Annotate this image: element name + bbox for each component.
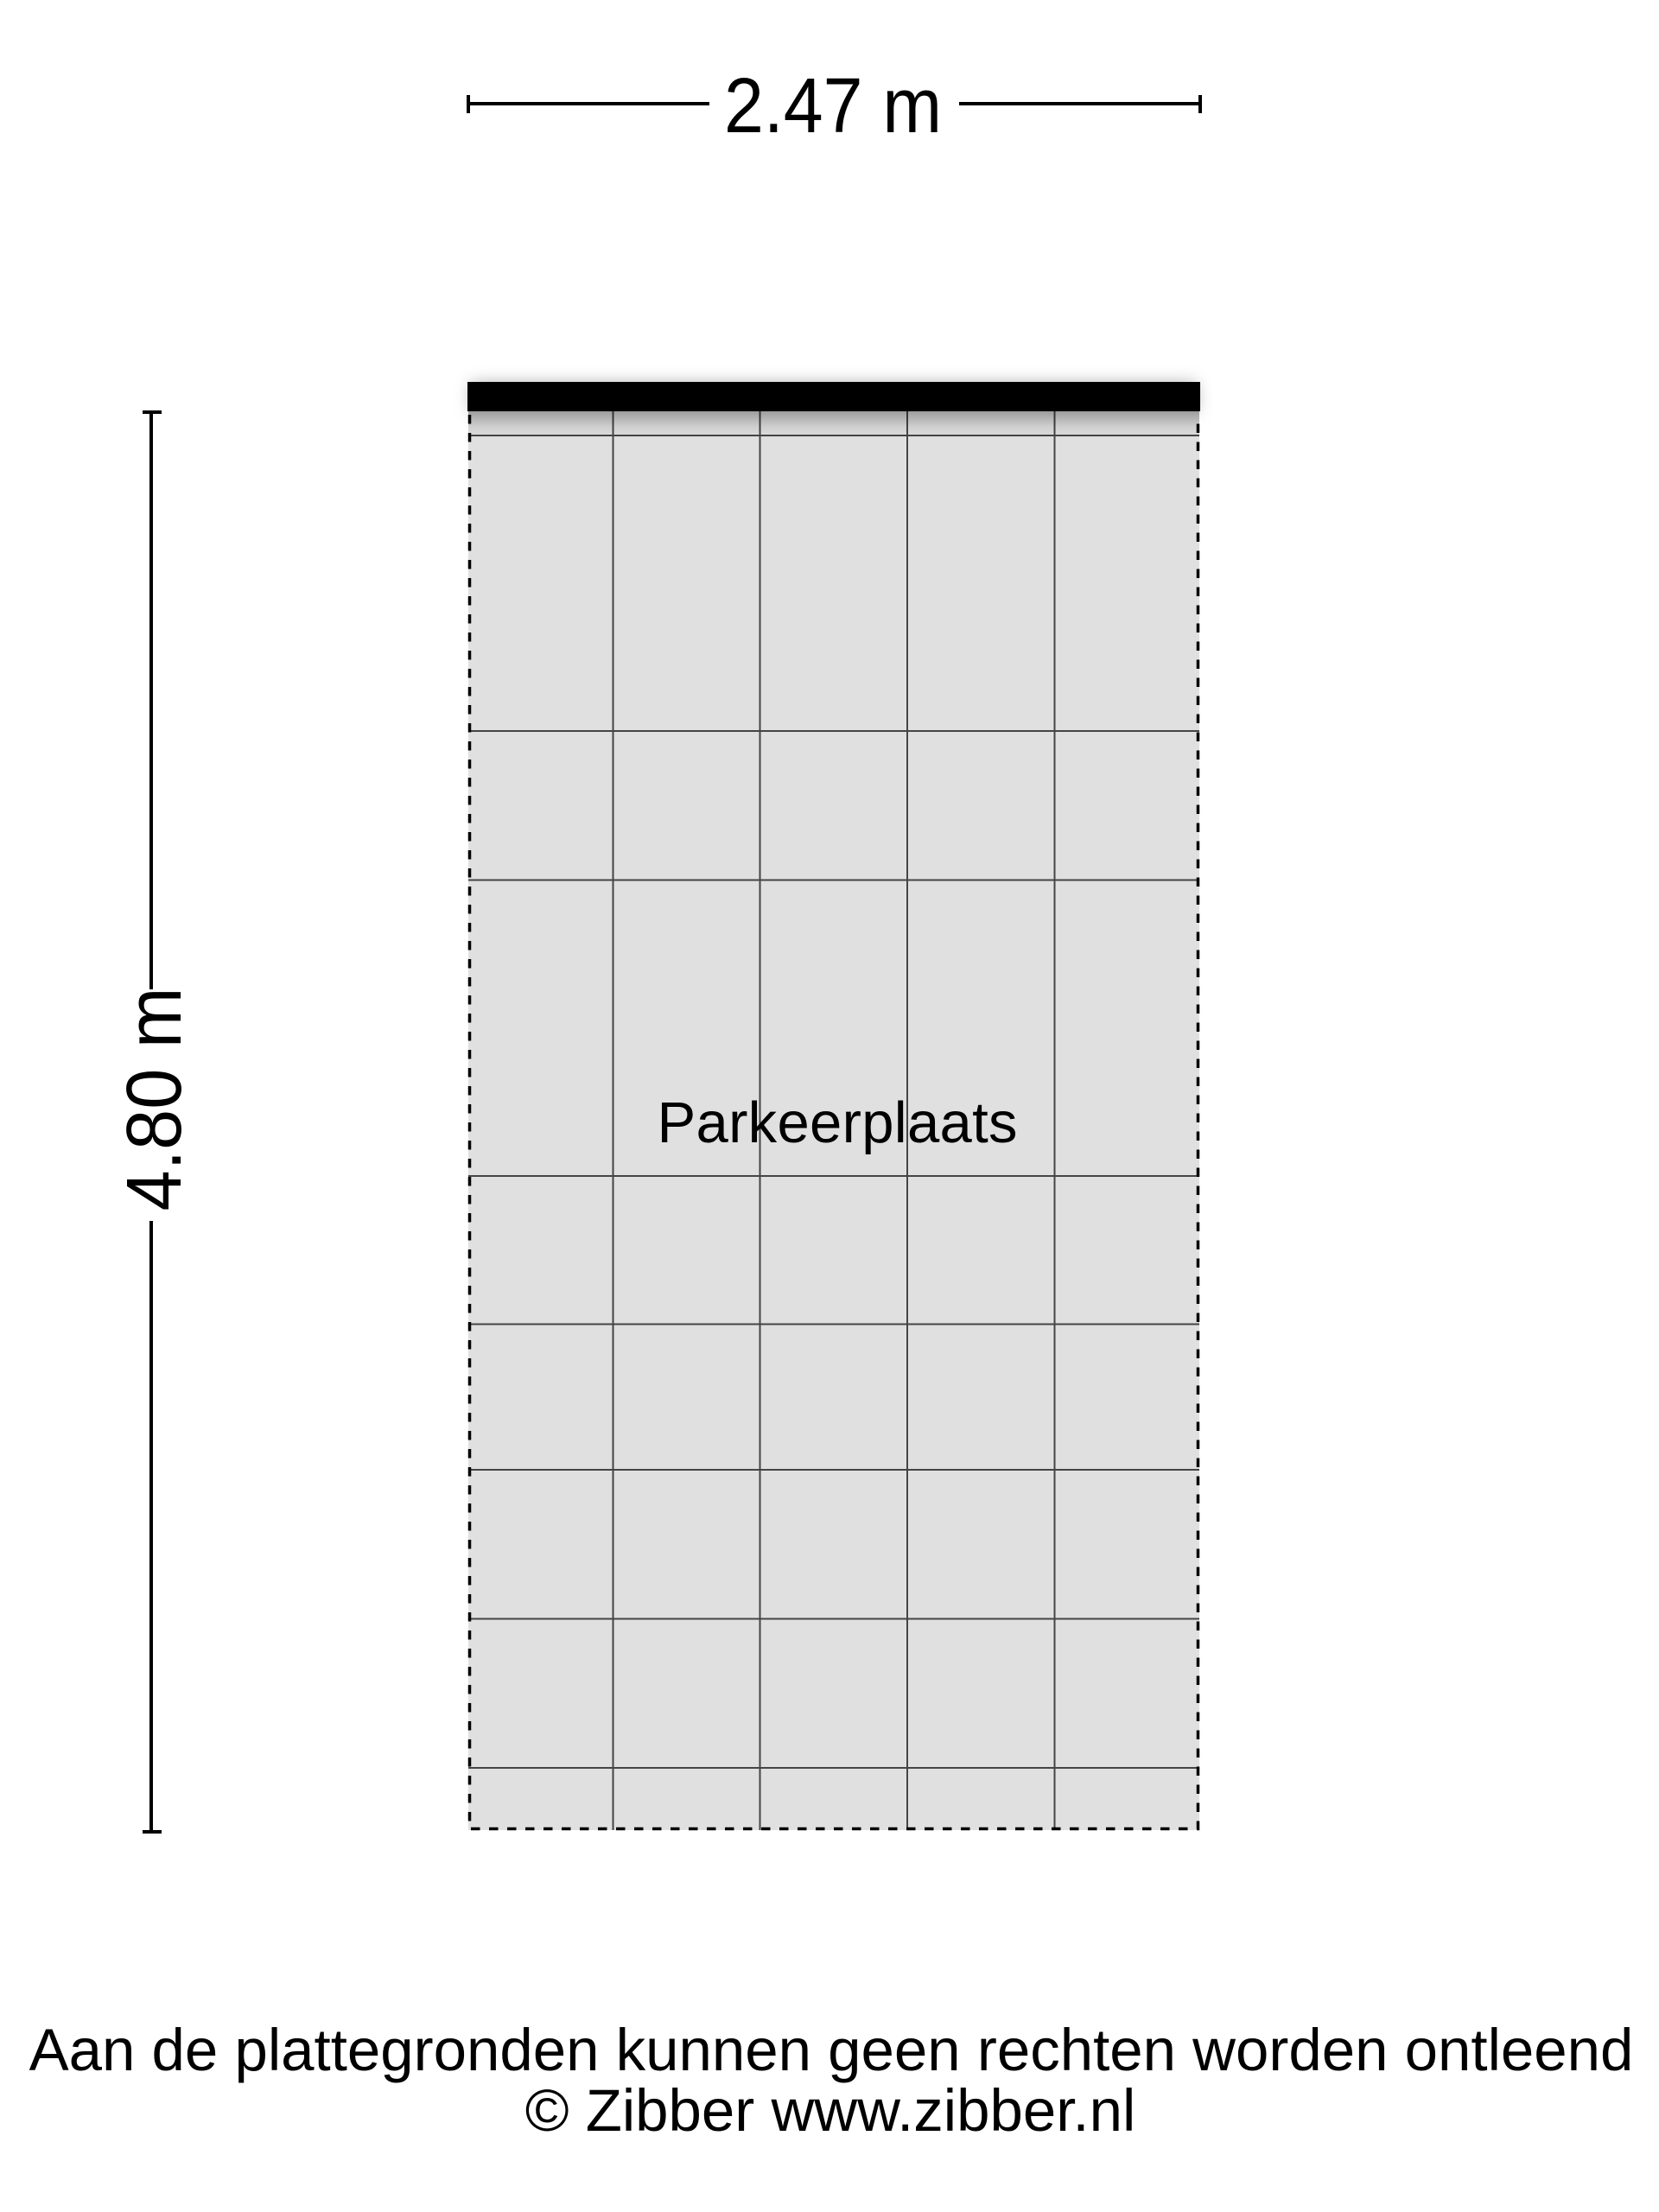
svg-text:4.80 m: 4.80 m [111, 988, 198, 1211]
svg-text:Aan de plattegronden kunnen ge: Aan de plattegronden kunnen geen rechten… [29, 2017, 1634, 2083]
svg-text:2.47 m: 2.47 m [724, 63, 942, 149]
svg-text:Parkeerplaats: Parkeerplaats [658, 1090, 1018, 1155]
svg-text:© Zibber www.zibber.nl: © Zibber www.zibber.nl [525, 2077, 1136, 2144]
